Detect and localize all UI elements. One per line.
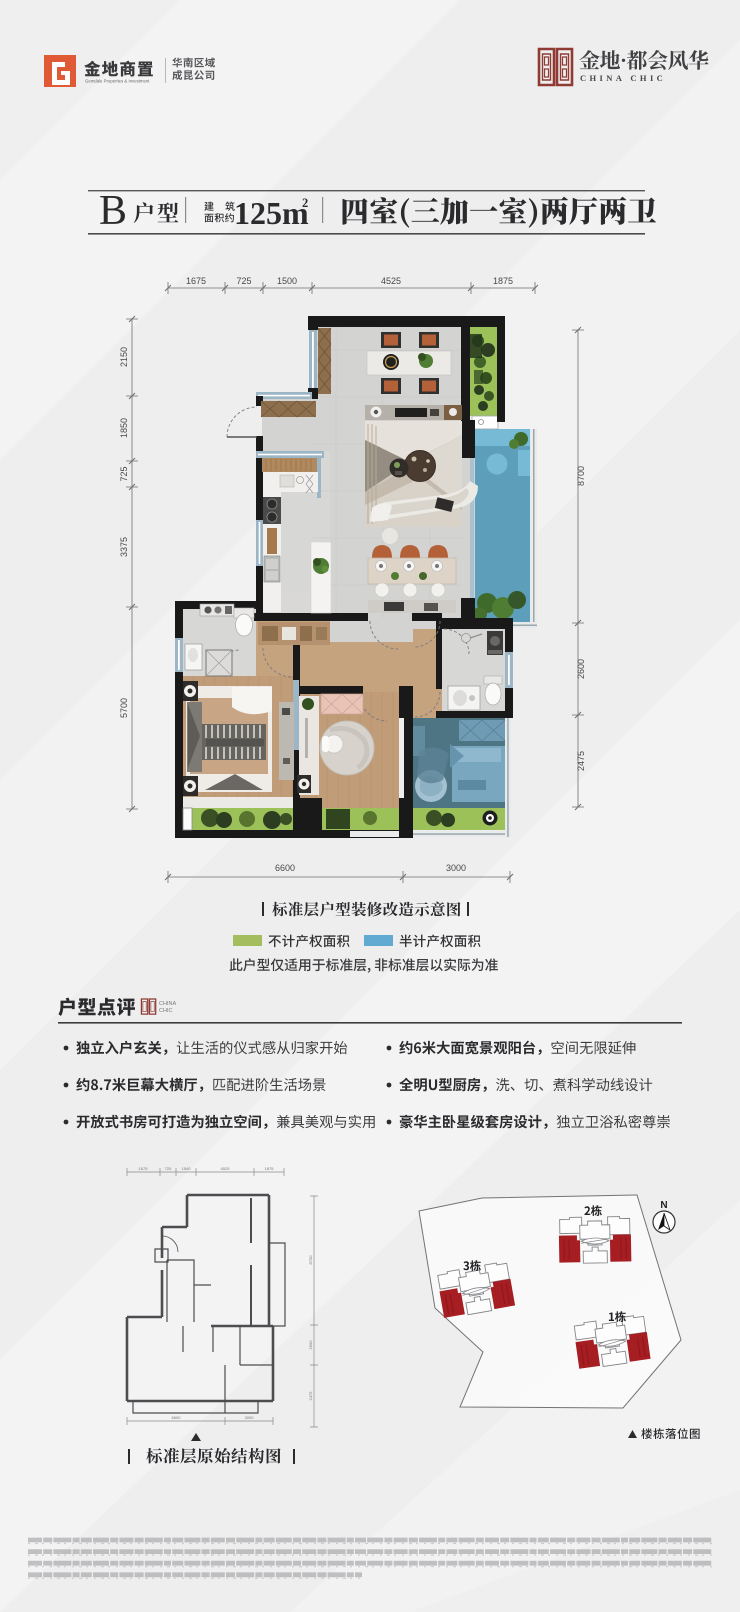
svg-text:6600: 6600 [172, 1415, 182, 1420]
svg-text:5700: 5700 [119, 698, 129, 718]
svg-text:3000: 3000 [245, 1415, 255, 1420]
svg-text:1675: 1675 [186, 276, 206, 286]
svg-text:8700: 8700 [576, 466, 586, 486]
svg-text:CHINA CHIC: CHINA CHIC [580, 73, 666, 83]
svg-text:125m: 125m [234, 195, 309, 231]
svg-text:1500: 1500 [277, 276, 297, 286]
svg-text:725: 725 [236, 276, 251, 286]
svg-text:4525: 4525 [221, 1166, 231, 1171]
svg-text:N: N [660, 1200, 667, 1211]
svg-text:2475: 2475 [308, 1391, 313, 1401]
svg-text:Gemdale Properties & Investmen: Gemdale Properties & Investment [85, 79, 150, 84]
svg-text:2600: 2600 [308, 1340, 313, 1350]
svg-text:CHIC: CHIC [159, 1008, 172, 1014]
svg-text:4525: 4525 [381, 276, 401, 286]
svg-text:8700: 8700 [308, 1255, 313, 1265]
svg-text:2475: 2475 [576, 751, 586, 771]
svg-text:1875: 1875 [265, 1166, 275, 1171]
svg-text:3000: 3000 [446, 863, 466, 873]
svg-text:725: 725 [119, 466, 129, 481]
svg-text:1875: 1875 [493, 276, 513, 286]
svg-text:3375: 3375 [119, 537, 129, 557]
svg-text:1675: 1675 [139, 1166, 149, 1171]
svg-text:B: B [99, 188, 127, 234]
svg-text:1850: 1850 [119, 418, 129, 438]
svg-text:6600: 6600 [275, 863, 295, 873]
svg-text:725: 725 [165, 1166, 172, 1171]
svg-text:2600: 2600 [576, 659, 586, 679]
svg-text:CHINA: CHINA [159, 1001, 176, 1007]
svg-text:2: 2 [302, 196, 308, 210]
svg-text:2150: 2150 [119, 347, 129, 367]
svg-text:1540: 1540 [182, 1166, 192, 1171]
